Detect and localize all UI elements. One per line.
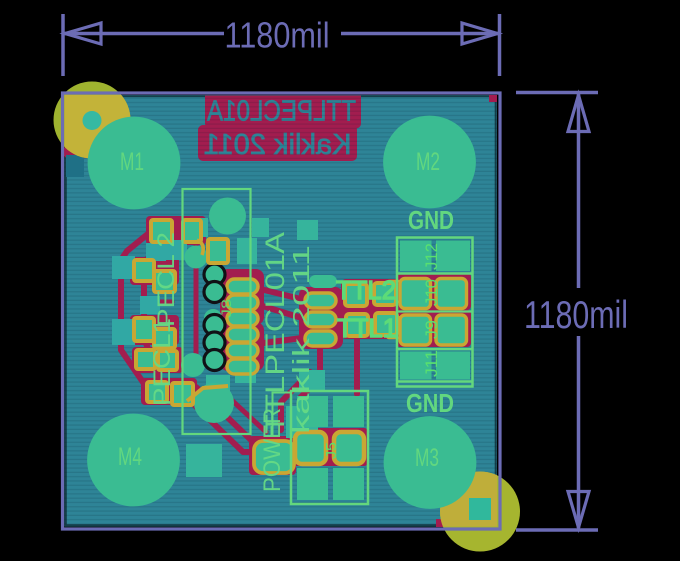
- svg-text:J11: J11: [422, 350, 441, 377]
- svg-text:PECL1: PECL1: [149, 318, 176, 406]
- svg-text:GND: GND: [408, 205, 454, 235]
- svg-text:J9: J9: [422, 320, 441, 339]
- svg-text:1180mil: 1180mil: [225, 15, 330, 56]
- svg-text:GND: GND: [406, 388, 454, 418]
- svg-text:J10: J10: [422, 279, 441, 306]
- svg-text:1180mil: 1180mil: [524, 294, 628, 337]
- svg-text:kaklik 2011: kaklik 2011: [288, 245, 314, 434]
- svg-text:M4: M4: [118, 443, 142, 471]
- svg-text:M2: M2: [416, 148, 440, 176]
- svg-text:TTLPECL01A: TTLPECL01A: [260, 232, 290, 434]
- svg-text:J8: J8: [218, 299, 234, 318]
- svg-text:TTL1: TTL1: [337, 313, 397, 343]
- svg-text:J5: J5: [323, 442, 340, 459]
- svg-text:M3: M3: [415, 444, 439, 472]
- svg-text:M1: M1: [120, 148, 144, 176]
- svg-text:PECL 2: PECL 2: [153, 232, 180, 327]
- svg-text:J12: J12: [422, 243, 441, 270]
- svg-text:TTL2: TTL2: [336, 275, 396, 305]
